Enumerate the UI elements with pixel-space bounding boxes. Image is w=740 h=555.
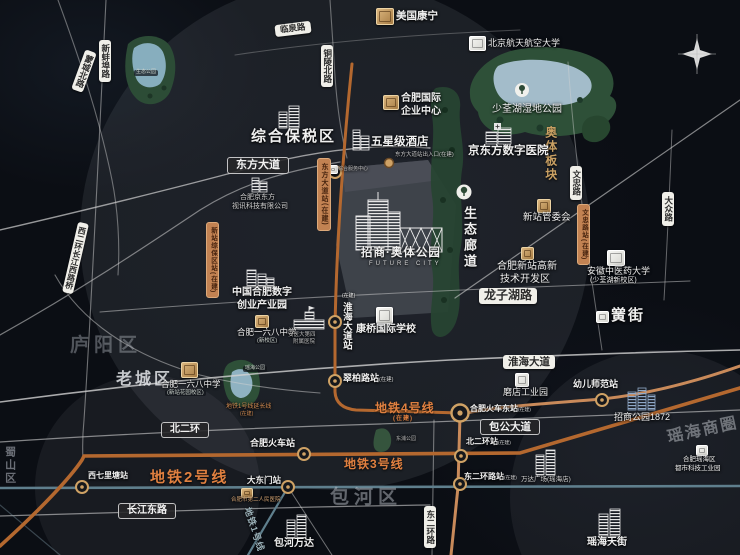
park-nw-label: 生态公园 bbox=[134, 70, 158, 76]
road-dazhong: 大众路 bbox=[662, 192, 674, 226]
metro-line1-ext-status: (在建) bbox=[240, 412, 253, 418]
park-east-label: 东浦公园 bbox=[396, 437, 416, 443]
park-east bbox=[374, 428, 392, 452]
tree-icon-corridor bbox=[457, 185, 472, 200]
landmark-168b-sub: (新站花园校区) bbox=[165, 390, 206, 396]
park-shaoquan-label: 少荃湖湿地公园 bbox=[492, 104, 562, 116]
landmark-168a-sub: (新校区) bbox=[255, 338, 279, 344]
station-cuibai: 翠柏路站(在建) bbox=[343, 373, 393, 383]
landmark-digital-1: 中国合肥数字 bbox=[232, 287, 292, 299]
landmark-gaoxin-1: 合肥新站高新 bbox=[497, 261, 557, 273]
school-icon-kangqiao bbox=[376, 307, 393, 324]
station-beierhuan: 北二环站(在建) bbox=[466, 437, 511, 447]
park-south-label: 瑶海公园 bbox=[243, 366, 267, 372]
road-huaihai: 淮海大道 bbox=[503, 355, 555, 369]
landmark-tcm-2: (少荃湖新校区) bbox=[590, 277, 637, 285]
buildings-icon-hotel bbox=[353, 130, 369, 150]
road-xinbengbu: 新蚌埠路 bbox=[99, 40, 111, 82]
station-beierhuan-name: 北二环站 bbox=[466, 437, 498, 446]
school-icon-anyida bbox=[294, 306, 324, 329]
gov-icon-gaoxin bbox=[521, 247, 534, 260]
metro-line1-ext-label: 地铁1号线延长线 bbox=[226, 404, 271, 411]
station-cuibai-status: (在建) bbox=[379, 377, 393, 383]
landmark-bonded-zone: 综合保税区 bbox=[251, 128, 336, 145]
landmark-xinzhan-admin: 新站管委会 bbox=[523, 213, 571, 224]
landmark-boe-hospital: 京东方数字医院 bbox=[468, 145, 549, 158]
landmark-hotel: 五星级酒店 bbox=[371, 136, 429, 149]
landmark-boe-1: 合肥京东方 bbox=[240, 194, 275, 202]
eco-corridor bbox=[431, 87, 463, 337]
landmark-kangqiao: 康桥国际学校 bbox=[356, 324, 416, 336]
station-dongfangdadao-exit: 东方大道站出入口(在建) bbox=[395, 152, 454, 158]
road-wenzhong: 文忠路 bbox=[570, 166, 582, 200]
landmark-yaohai-tech-1: 合肥瑶海区 bbox=[683, 456, 716, 463]
company-icon-corning bbox=[376, 8, 394, 25]
landmark-corning: 美国康宁 bbox=[396, 10, 438, 22]
road-longzihu: 龙子湖路 bbox=[479, 288, 537, 304]
station-zongbao: 新站综保区站(在建) bbox=[206, 222, 219, 298]
station-beierhuan-status: (在建) bbox=[498, 441, 511, 446]
station-east-rail: 合肥火车东站(在建) bbox=[470, 404, 531, 414]
school-icon-168b bbox=[181, 362, 198, 378]
landmark-boe-2: 视讯科技有限公司 bbox=[232, 203, 288, 211]
station-wenzhong: 文忠路站(在建) bbox=[577, 204, 590, 265]
metro-line4-status: (在建) bbox=[393, 416, 413, 423]
buildings-icon-baohe-wanda bbox=[287, 515, 306, 538]
landmark-beihang: 北京航天航空大学 bbox=[488, 38, 560, 48]
buildings-icon-wanda-yaohai bbox=[536, 450, 555, 475]
metro-line4-label: 地铁4号线 bbox=[375, 402, 435, 416]
metro-exit-dot bbox=[385, 159, 394, 168]
buildings-icon-yaohai-tianjie bbox=[599, 509, 620, 536]
landmark-yaohai-tech-2: 都市科技工业园 bbox=[675, 465, 721, 472]
station-dongerhuan-name: 东二环路站 bbox=[464, 472, 504, 481]
university-icon-beihang bbox=[469, 36, 486, 51]
station-dongerhuan: 东二环路站(在建) bbox=[464, 472, 517, 482]
landmark-hospital2: 合肥市第二人民医院 bbox=[231, 497, 281, 503]
compass-icon bbox=[678, 34, 716, 74]
station-youer-shifan: 幼儿师范站 bbox=[573, 379, 618, 389]
industry-icon-yaohai-tech bbox=[696, 445, 708, 456]
metro-line3-label: 地铁3号线 bbox=[344, 458, 404, 472]
mall-icon-hongjie bbox=[596, 311, 609, 323]
gov-icon-xinzhan-admin bbox=[537, 199, 551, 213]
road-tongling: 铜陵北路 bbox=[321, 45, 333, 87]
company-icon-intl-center bbox=[383, 95, 399, 110]
road-dongerhuan: 东二环路 bbox=[424, 506, 436, 548]
road-dongfang: 东方大道 bbox=[227, 157, 289, 174]
district-baohe: 包河区 bbox=[330, 487, 402, 509]
station-east-rail-status: (在建) bbox=[518, 408, 531, 413]
road-beierhuan: 北二环 bbox=[161, 422, 209, 438]
landmark-baohe-wanda: 包河万达 bbox=[274, 538, 314, 550]
station-dongerhuan-status: (在建) bbox=[504, 476, 517, 481]
station-huaihai-status: (在建) bbox=[342, 294, 355, 300]
landmark-tcm-1: 安徽中医药大学 bbox=[587, 266, 650, 276]
road-changjiang: 长江东路 bbox=[118, 503, 176, 519]
metro-line2-label: 地铁2号线 bbox=[150, 469, 228, 486]
road-baogong: 包公大道 bbox=[480, 419, 540, 435]
buildings-icon-digital-park bbox=[247, 270, 274, 287]
station-cuibai-name: 翠柏路站 bbox=[343, 373, 379, 383]
zone-eco-corridor: 生态廊道 bbox=[461, 206, 476, 270]
landmark-anyida-2: 附属医院 bbox=[293, 339, 315, 345]
station-xiqilitang: 西七里塘站 bbox=[88, 471, 128, 480]
station-dadongmen: 大东门站 bbox=[247, 476, 281, 486]
landmark-intl-center-1: 合肥国际 bbox=[401, 93, 441, 105]
landmark-gaoxin-2: 技术开发区 bbox=[500, 274, 550, 286]
landmark-168b: 合肥一六八中学 bbox=[161, 380, 221, 390]
landmark-anyida-1: 安医大第四 bbox=[288, 332, 316, 338]
station-huaihai: 淮海大道站 bbox=[340, 302, 351, 350]
zone-hongjie: 黉街 bbox=[611, 307, 645, 324]
station-east-rail-name: 合肥火车东站 bbox=[470, 404, 518, 413]
landmark-modian: 磨店工业园 bbox=[503, 387, 548, 397]
project-name-en: FUTURE CITY bbox=[369, 261, 442, 268]
project-name: 招商·奥体公园 bbox=[361, 247, 441, 260]
landmark-intl-center-2: 企业中心 bbox=[401, 106, 441, 118]
buildings-icon-bonded-zone bbox=[279, 106, 299, 128]
university-icon-tcm bbox=[607, 250, 625, 266]
landmark-wanda-yaohai: 万达广场(瑶海店) bbox=[521, 476, 571, 483]
landmark-service: 综合服务中心 bbox=[338, 167, 368, 173]
location-map: 庐阳区 老城区 包河区 蜀山区 瑶海商圈 奥体板块 生态廊道 黉街 蒙城北路 临… bbox=[0, 0, 740, 555]
landmark-yaohai-tianjie: 瑶海天街 bbox=[587, 537, 627, 549]
district-luyang: 庐阳区 bbox=[70, 335, 142, 357]
district-shushan: 蜀山区 bbox=[3, 446, 16, 485]
landmark-park1872: 招商公园1872 bbox=[614, 412, 670, 422]
station-dongfangdadao: 东方大道站(在建) bbox=[317, 158, 331, 231]
station-hefei-rail: 合肥火车站 bbox=[250, 438, 295, 448]
industry-icon-modian bbox=[515, 373, 529, 387]
tree-icon-shaoquan bbox=[515, 83, 529, 97]
landmark-digital-2: 创业产业园 bbox=[237, 300, 287, 312]
